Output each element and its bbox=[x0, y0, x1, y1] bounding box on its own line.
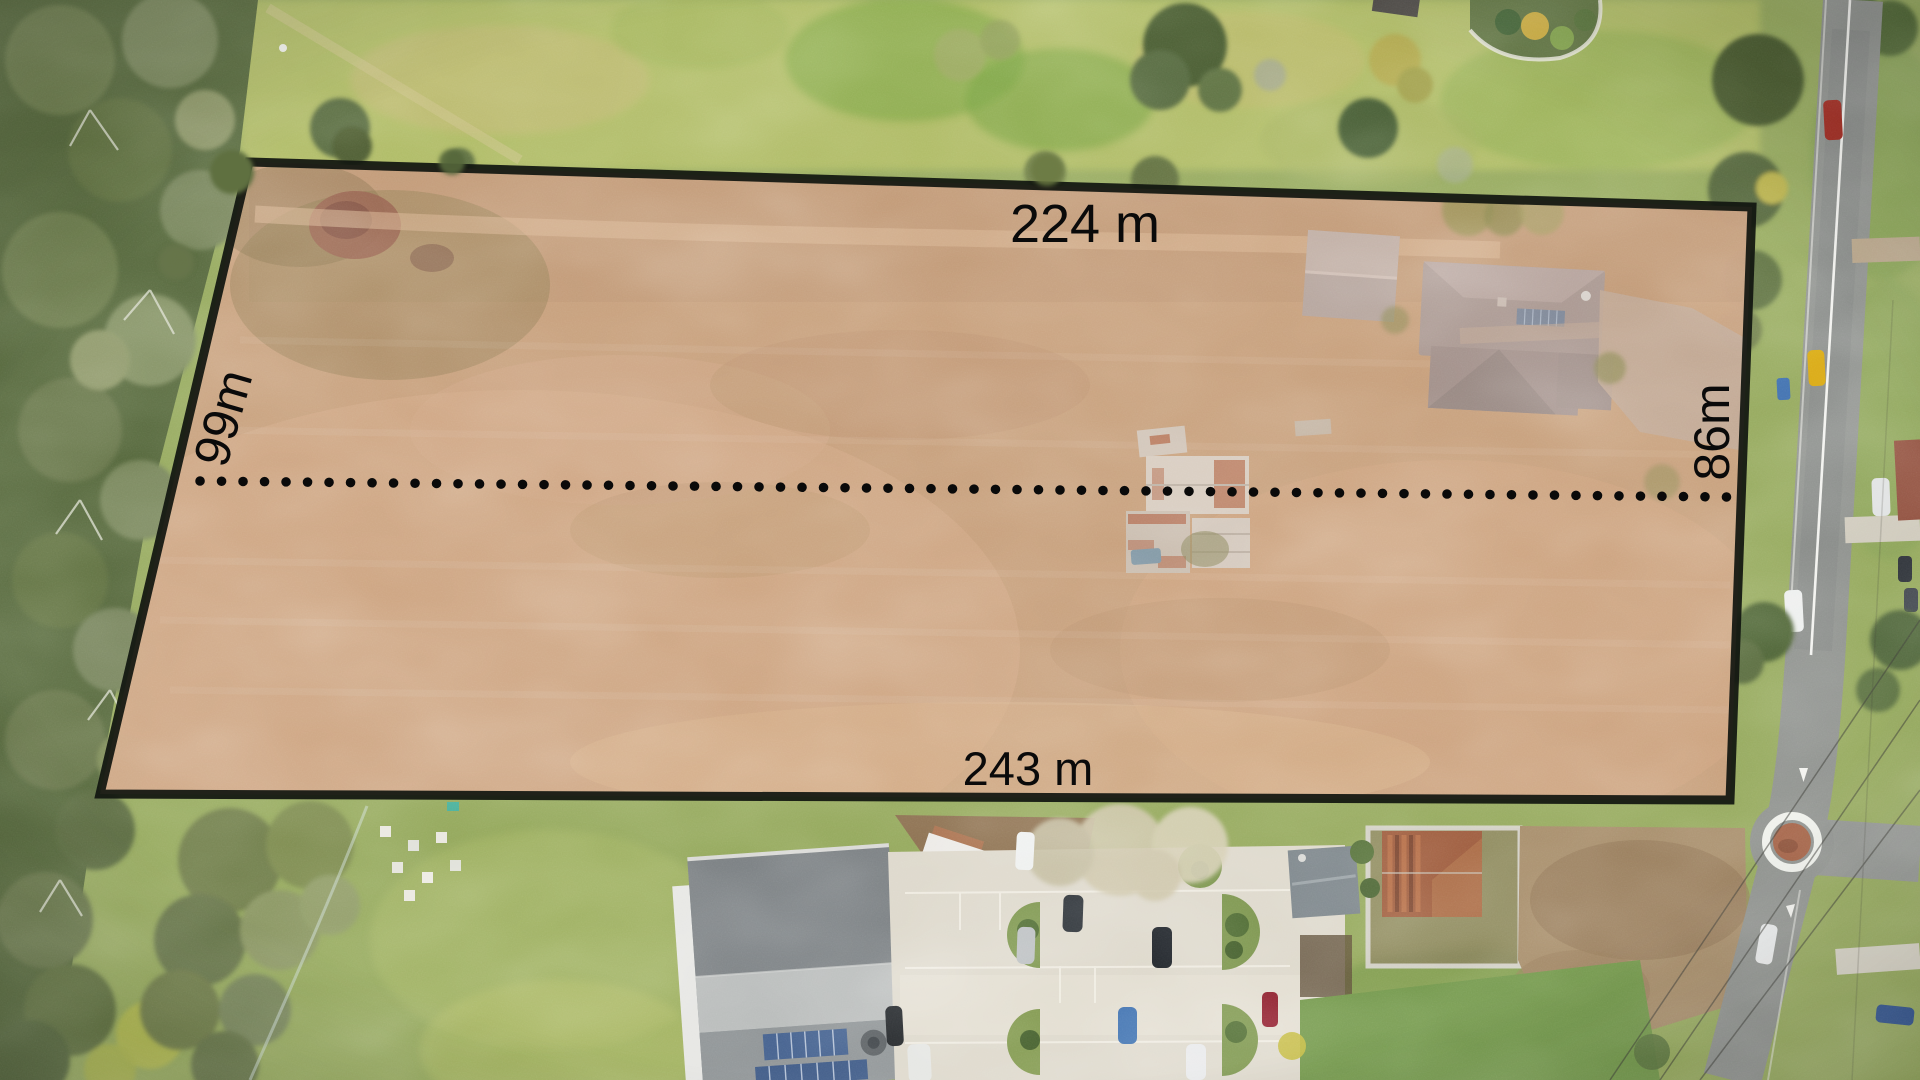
aerial-photo-canvas: 224 m 243 m 99m 86m bbox=[0, 0, 1920, 1080]
dimension-label-right: 86m bbox=[1684, 383, 1740, 480]
aerial-photo: 224 m 243 m 99m 86m bbox=[0, 0, 1920, 1080]
dimension-label-top: 224 m bbox=[1010, 194, 1160, 254]
dimension-label-bottom: 243 m bbox=[963, 742, 1094, 795]
